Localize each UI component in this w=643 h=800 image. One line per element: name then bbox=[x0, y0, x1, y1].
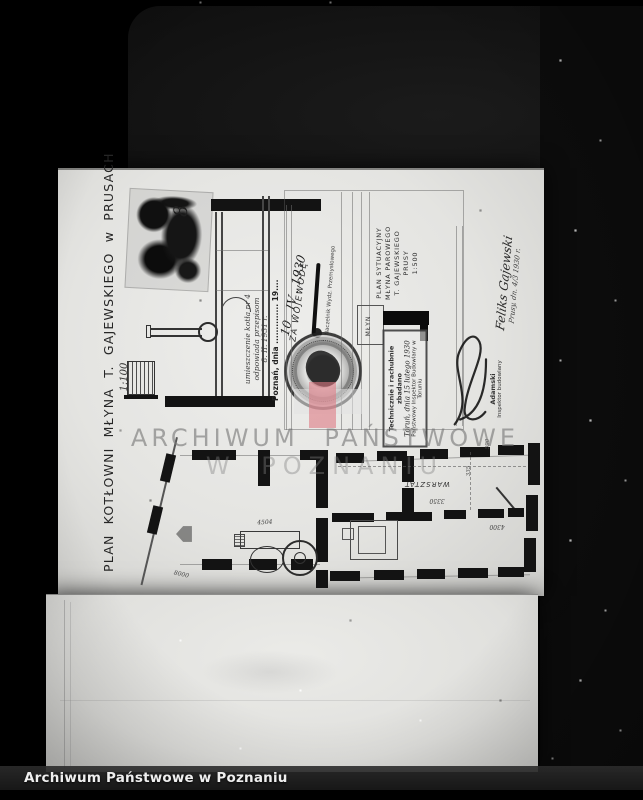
site-plan-building bbox=[383, 311, 429, 325]
boiler-plan-circle-inner bbox=[294, 552, 306, 564]
site-plan-title: PLAN SYTUACYJNY MŁYNA PAROWEGO T. GAJEWS… bbox=[375, 215, 425, 311]
floorplan-wall-segment bbox=[444, 510, 466, 519]
boiler-plan-ellipse bbox=[250, 546, 284, 573]
letterhead-rule bbox=[291, 205, 292, 430]
watermark-line1: ARCHIWUM PAŃSTWOWE bbox=[60, 424, 590, 452]
floorplan-wall-segment bbox=[508, 508, 524, 517]
floorplan-wall-segment bbox=[147, 505, 163, 535]
approval-note-line: 8. II. 1931 r. bbox=[261, 274, 270, 404]
owner-signature-block: Feliks Gajewski Prusy, dn. 4/3 1930 r. bbox=[493, 229, 531, 340]
archive-footer-bar: Archiwum Państwowe w Poznaniu bbox=[0, 766, 643, 790]
inspector-name: Adamski bbox=[489, 353, 497, 425]
archive-footer-label: Archiwum Państwowe w Poznaniu bbox=[24, 770, 288, 786]
floorplan-wall-segment bbox=[202, 559, 232, 570]
paper-crease bbox=[60, 700, 530, 701]
letterhead-rule bbox=[286, 205, 287, 430]
hatched-equipment-box bbox=[127, 361, 155, 395]
boiler-plan-hatchbox bbox=[234, 534, 245, 547]
site-plan-title-line: 1:500 bbox=[411, 215, 420, 311]
floorplan-wall-segment bbox=[330, 571, 360, 581]
floorplan-wall-segment bbox=[524, 538, 536, 572]
pipe-line bbox=[150, 335, 202, 337]
paper-smudge bbox=[200, 650, 340, 694]
site-plan-title-line: PLAN SYTUACYJNY bbox=[375, 215, 384, 311]
pipe-end-cap bbox=[146, 325, 151, 338]
site-plan-title-line: PRUSY bbox=[402, 215, 411, 311]
dimension-label: 4300 bbox=[484, 521, 510, 529]
floorplan-wall-segment bbox=[402, 488, 414, 514]
floorplan-wall-segment bbox=[417, 569, 445, 579]
mill-equipment-inner bbox=[358, 526, 386, 554]
floorplan-wall-segment bbox=[498, 567, 524, 577]
section-tie-line bbox=[216, 250, 268, 251]
chute-arrow bbox=[176, 526, 192, 542]
chimney-line bbox=[215, 212, 217, 398]
inspector-title: Inspektor budowlany bbox=[497, 353, 504, 425]
fold-line bbox=[64, 600, 65, 768]
scanned-archive-photo: PLAN KOTŁOWNI MŁYNA T. GAJEWSKIEGO w PRU… bbox=[0, 0, 643, 800]
floorplan-wall-segment bbox=[374, 570, 404, 580]
floorplan-wall-segment bbox=[478, 509, 504, 518]
site-plan-title-line: T. GAJEWSKIEGO bbox=[393, 215, 402, 311]
dimension-label: 3350 bbox=[424, 495, 450, 503]
handwritten-folio-number: 8 bbox=[171, 201, 193, 221]
site-plan-title-line: MŁYNA PAROWEGO bbox=[384, 215, 393, 311]
film-grain-dark bbox=[0, 0, 1, 1]
mill-label: MŁYN bbox=[366, 307, 376, 345]
dimension-label: 8000 bbox=[164, 568, 199, 583]
fold-line bbox=[70, 602, 71, 766]
pipe-flange-circle bbox=[198, 322, 218, 342]
pipe-line bbox=[150, 328, 202, 330]
watermark-line2: W POZNANIU bbox=[60, 452, 590, 480]
equipment-base-bar bbox=[124, 395, 158, 399]
revenue-stamp-block bbox=[124, 188, 213, 292]
mill-equipment-square bbox=[342, 528, 354, 540]
inspector-name-block: Adamski Inspektor budowlany bbox=[489, 353, 507, 425]
watermark-logo-red bbox=[309, 382, 336, 428]
floorplan-wall-segment bbox=[316, 570, 328, 588]
dimension-label: 4504 bbox=[248, 519, 282, 529]
mill-label-box: MŁYN bbox=[357, 305, 384, 345]
floorplan-wall-segment bbox=[458, 568, 488, 578]
floorplan-wall-segment bbox=[526, 495, 538, 531]
